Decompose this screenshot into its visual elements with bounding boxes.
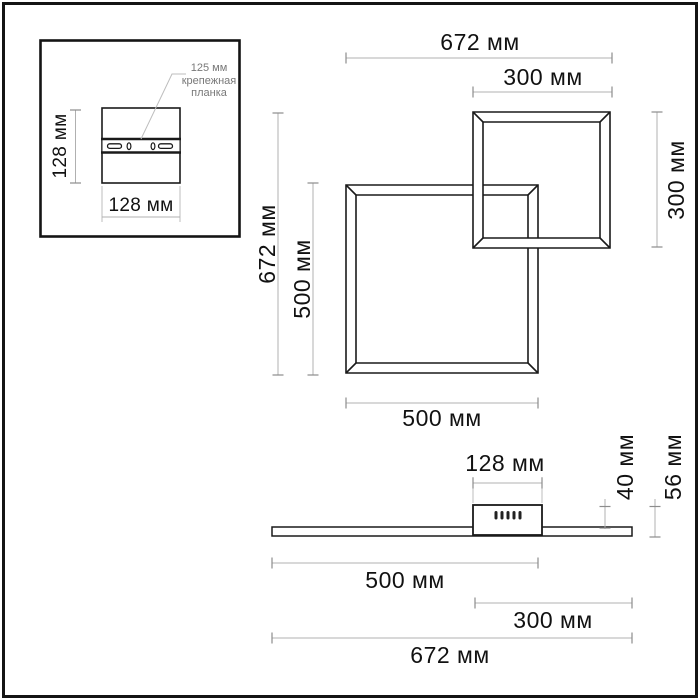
left-section-dimension: 500 мм: [272, 558, 538, 594]
canopy-height-label: 40 мм: [612, 434, 638, 500]
front-overall-width-label: 672 мм: [440, 29, 519, 55]
screw-hole-left: [127, 143, 131, 150]
left-section-label: 500 мм: [365, 567, 444, 593]
vent-slot: [507, 511, 510, 520]
small-square-frame: [473, 112, 610, 248]
large-square-height-label: 500 мм: [289, 239, 315, 318]
right-section-label: 300 мм: [513, 607, 592, 633]
front-view: 672 мм 300 мм 300 мм 672 мм: [254, 29, 689, 431]
vent-slot: [513, 511, 516, 520]
small-square-width-dimension: 300 мм: [473, 64, 612, 98]
small-square-height-label: 300 мм: [663, 140, 689, 219]
overall-height-dimension: 56 мм: [650, 434, 687, 537]
screw-slot-left: [108, 144, 122, 149]
large-square-frame: [346, 185, 538, 373]
front-overall-width-dimension: 672 мм: [346, 29, 612, 64]
front-overall-height-dimension: 672 мм: [254, 113, 284, 375]
mounting-plate-top-view: [101, 108, 181, 183]
callout-size-label: 125 мм: [191, 62, 228, 74]
large-square-height-dimension: 500 мм: [289, 183, 319, 375]
canopy-box: [473, 505, 542, 535]
fixture-profile-bar: [272, 527, 632, 536]
side-view: 128 мм 40 мм 56 мм 500 мм 30: [272, 434, 686, 668]
large-square-width-dimension: 500 мм: [346, 398, 538, 432]
canopy-height-dimension: 40 мм: [600, 434, 639, 529]
screw-slot-right: [159, 144, 173, 149]
overall-height-label: 56 мм: [660, 434, 686, 500]
callout-text-line2: крепежная: [182, 75, 237, 87]
vent-slot: [495, 511, 498, 520]
large-square-width-label: 500 мм: [402, 405, 481, 431]
mounting-plate-inset: 128 мм 128 мм 125 мм крепежная планка: [41, 41, 240, 237]
callout-text-line3: планка: [191, 87, 228, 99]
vent-slot: [519, 511, 522, 520]
inset-width-label: 128 мм: [109, 195, 174, 216]
front-overall-height-label: 672 мм: [254, 204, 280, 283]
small-square-width-label: 300 мм: [503, 64, 582, 90]
right-section-dimension: 300 мм: [475, 598, 632, 634]
overall-length-label: 672 мм: [410, 642, 489, 668]
overall-length-dimension: 672 мм: [272, 633, 632, 669]
vent-slot: [501, 511, 504, 520]
screw-hole-right: [151, 143, 155, 150]
canopy-width-dimension: 128 мм: [465, 450, 544, 503]
dimension-drawing-page: 128 мм 128 мм 125 мм крепежная планка: [0, 0, 700, 700]
technical-drawing: 128 мм 128 мм 125 мм крепежная планка: [0, 0, 700, 700]
inset-height-label: 128 мм: [50, 114, 71, 179]
canopy-width-label: 128 мм: [465, 450, 544, 476]
small-square-height-dimension: 300 мм: [652, 112, 690, 247]
